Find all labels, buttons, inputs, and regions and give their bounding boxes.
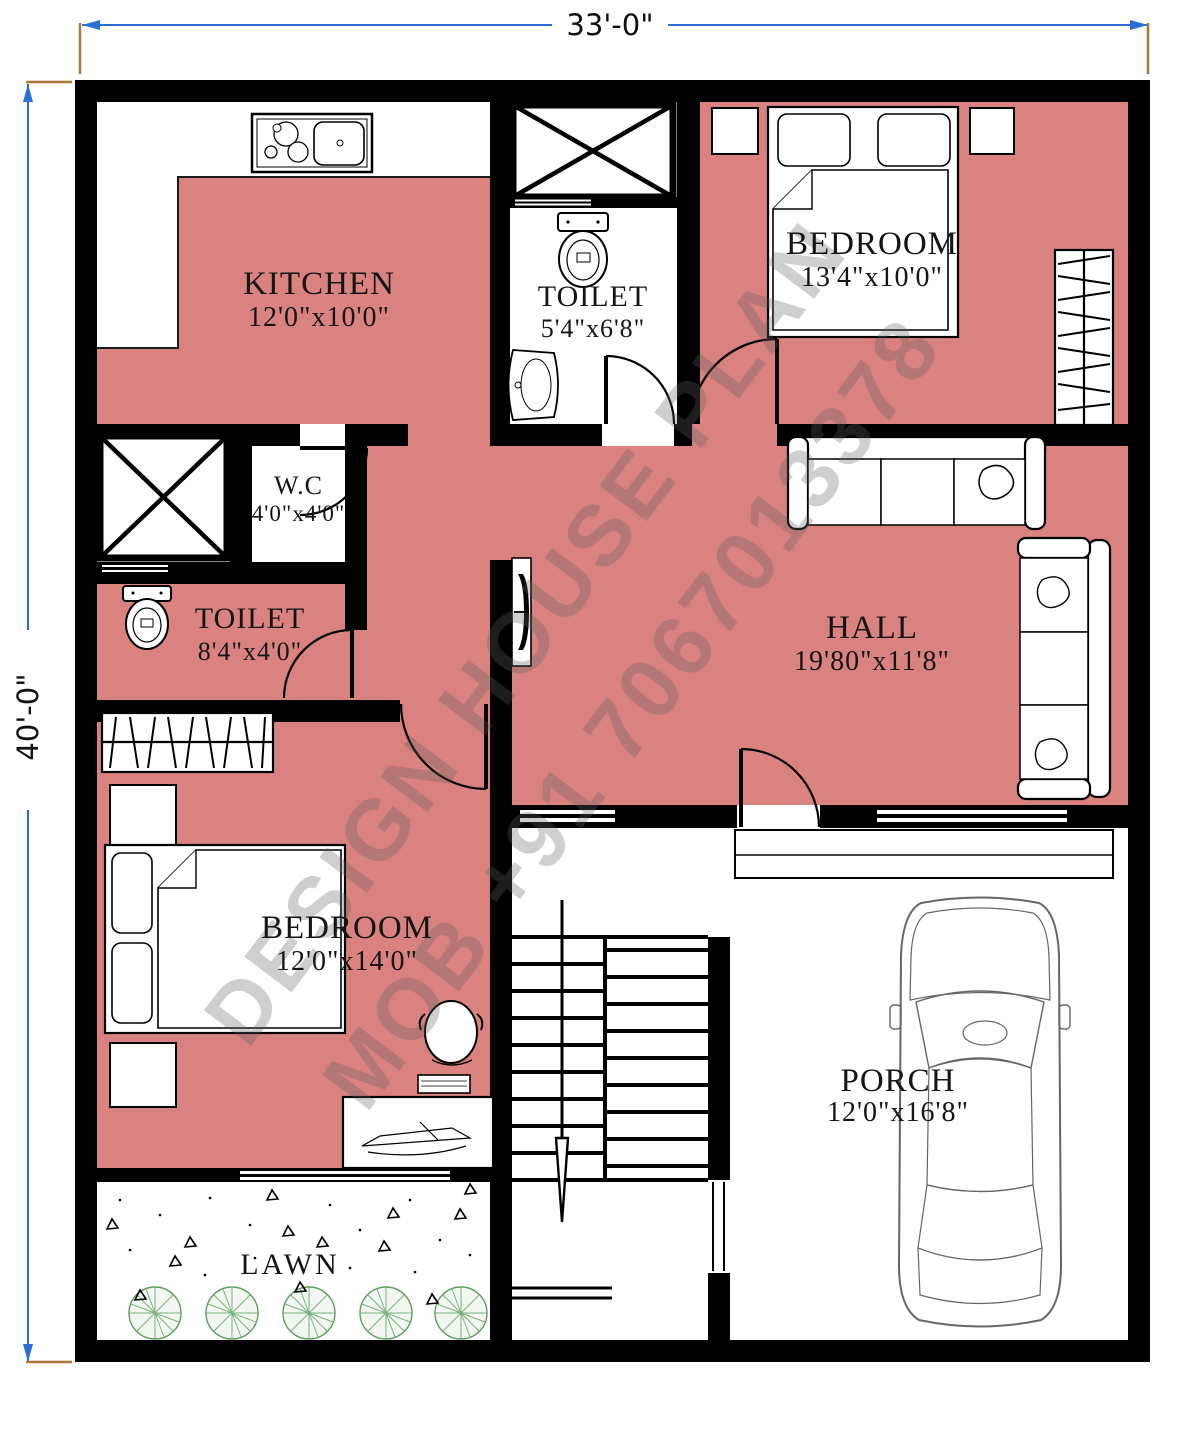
bedroom-top-size: 13'4"x10'0"	[712, 263, 1032, 294]
washbasin-icon	[509, 350, 559, 420]
window	[520, 818, 615, 822]
corridor	[490, 446, 512, 560]
window	[877, 818, 1067, 822]
wc-size: 4'0"x4'0"	[246, 501, 351, 526]
floor-plan: DESIGN HOUSE PLAN MOB +91 7067013378 KIT…	[0, 0, 1200, 1441]
door-opening	[300, 424, 345, 446]
shaft-icon	[100, 436, 227, 558]
wall	[510, 197, 677, 208]
grass-icon	[107, 1184, 476, 1304]
wall	[345, 424, 367, 630]
toilet-top-label: TOILET	[503, 280, 683, 313]
wall	[97, 700, 400, 722]
bedroom-bottom-size: 12'0"x14'0"	[187, 947, 507, 978]
toilet-icon	[558, 213, 608, 287]
window	[708, 1180, 730, 1273]
window	[240, 1177, 450, 1180]
toilet-top-size: 5'4"x6'8"	[503, 315, 683, 344]
width-dimension: 33'-0"	[545, 8, 675, 42]
porch-size: 12'0"x16'8"	[738, 1098, 1058, 1129]
wall	[490, 102, 510, 424]
door-opening	[400, 700, 490, 722]
hall-label: HALL	[712, 610, 1032, 646]
wall	[708, 937, 730, 1342]
shaft-icon	[513, 105, 673, 197]
corridor	[367, 446, 490, 700]
tree-icon	[129, 1287, 487, 1339]
wall	[75, 1340, 1150, 1362]
lawn-label: LAWN	[190, 1248, 390, 1281]
wall	[97, 562, 367, 584]
kitchen-size: 12'0"x10'0"	[174, 303, 464, 334]
window	[520, 810, 615, 814]
hall-size: 19'80"x11'8"	[712, 647, 1032, 678]
kitchen-label: KITCHEN	[174, 266, 464, 302]
toilet-left-label: TOILET	[150, 602, 350, 635]
door-opening	[602, 424, 674, 446]
porch-label: PORCH	[738, 1063, 1058, 1099]
wc-label: W.C	[246, 472, 351, 501]
wall	[512, 805, 1128, 828]
window	[877, 810, 1067, 814]
wall	[75, 80, 97, 1362]
toilet-left-size: 8'4"x4'0"	[150, 638, 350, 667]
door-opening	[737, 805, 820, 828]
wall	[75, 80, 1150, 102]
porch-steps	[735, 830, 1113, 878]
kitchen-counter	[97, 102, 178, 348]
window	[240, 1171, 450, 1174]
height-dimension: 40'-0"	[11, 637, 45, 797]
door-opening	[692, 424, 777, 446]
staircase-icon	[512, 900, 708, 1298]
wall	[677, 102, 700, 424]
bedroom-top-label: BEDROOM	[712, 226, 1032, 262]
wall	[1128, 80, 1150, 1362]
bedroom-bottom-label: BEDROOM	[187, 910, 507, 946]
door-opening	[408, 424, 490, 446]
